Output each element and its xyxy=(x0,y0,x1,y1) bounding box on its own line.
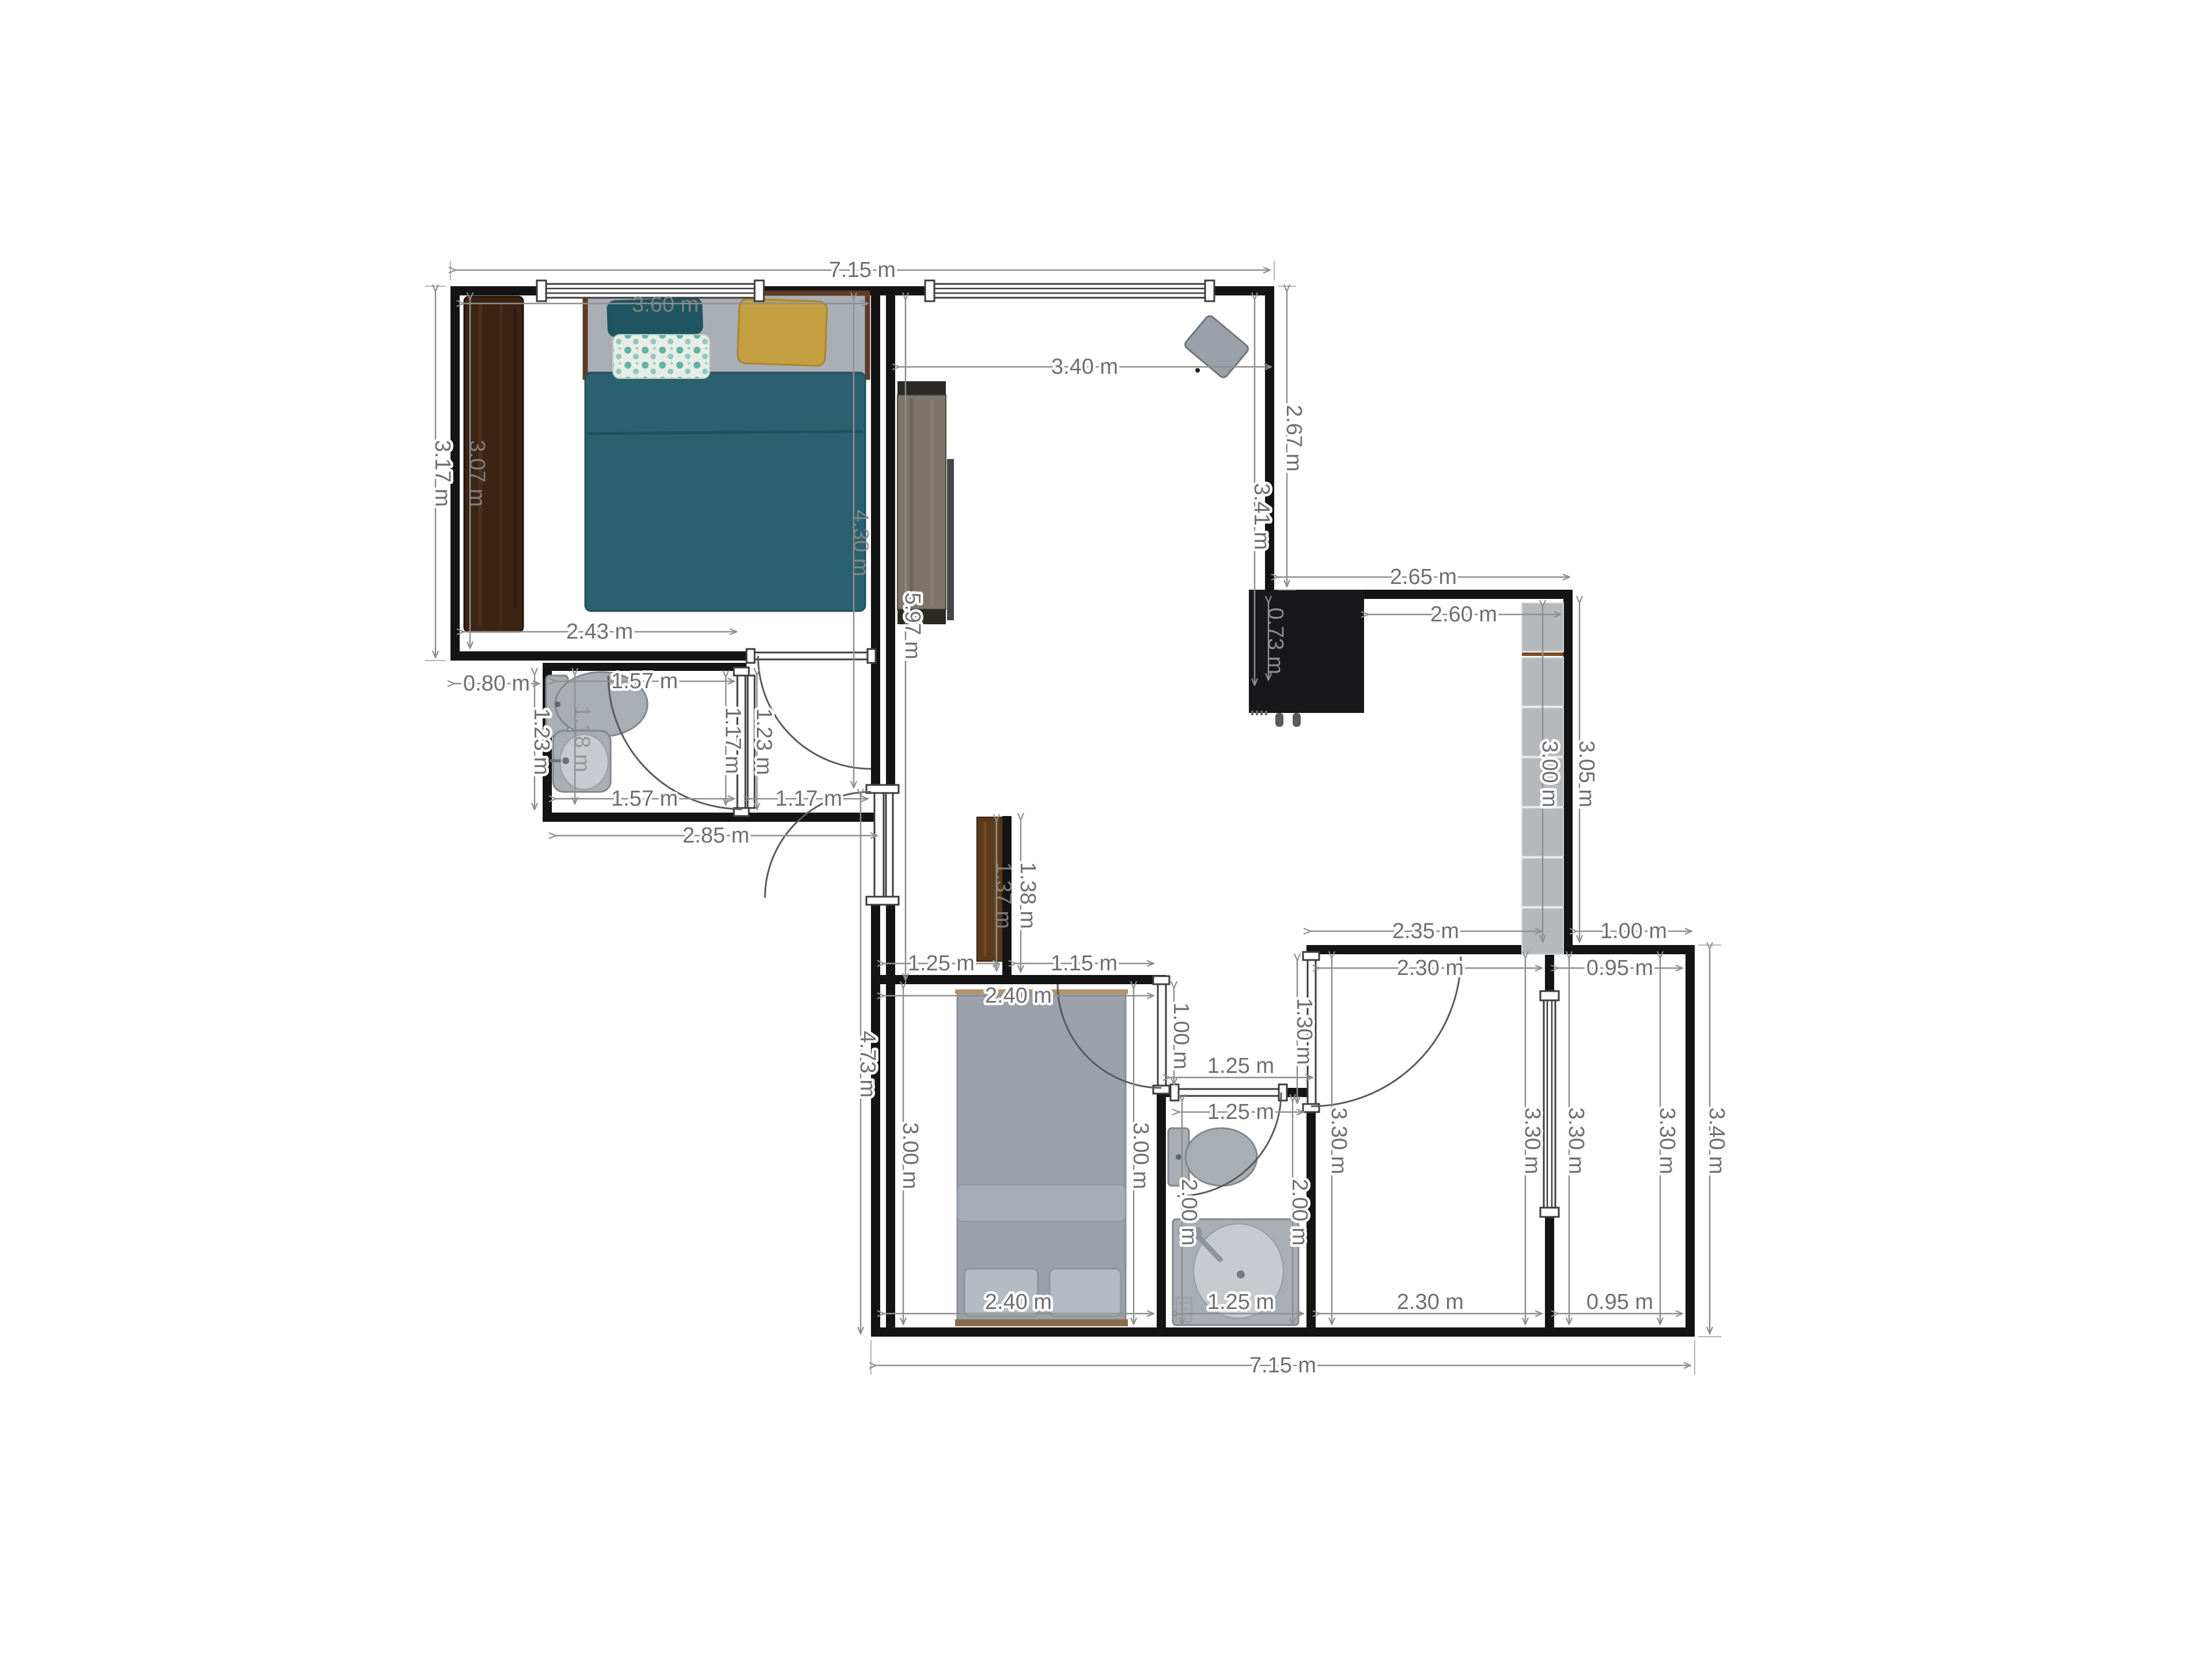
dim-label: 2.40 m xyxy=(985,1290,1052,1314)
dim-label: 2.40 m xyxy=(985,984,1052,1008)
dim-label: 4.73 m xyxy=(855,1031,880,1098)
dim-label: 2.65 m xyxy=(1390,565,1457,589)
door-leaf2 xyxy=(886,793,893,897)
dim-label: 3.30 m xyxy=(1520,1107,1544,1174)
window-glass xyxy=(1544,1000,1555,1208)
dim-label: 4.30 m xyxy=(849,510,873,576)
dim-label: 1.25 m xyxy=(908,951,975,976)
dim-label: 0.95 m xyxy=(1586,1290,1653,1314)
dim-label: 0.95 m xyxy=(1586,956,1653,980)
bed2-blanket-roll xyxy=(957,1185,1126,1221)
dim-3.40-right: 3.40 m xyxy=(1705,948,1729,1333)
window-room-divider xyxy=(1540,991,1559,1217)
dim-label: 5.97 m xyxy=(900,593,925,659)
dim-label: 3.40 m xyxy=(1705,1107,1729,1174)
window-jamb xyxy=(755,280,764,301)
wall-bedroom-bottom xyxy=(450,651,753,661)
dim-label: 1.57 m xyxy=(611,669,678,693)
wall-living-right xyxy=(1265,295,1274,599)
window-glass xyxy=(934,284,1205,298)
dim-label: 3.07 m xyxy=(465,440,489,507)
wall-lower-left-outer xyxy=(871,898,880,1337)
pillow-floral xyxy=(613,335,710,378)
window-jamb xyxy=(1205,280,1214,301)
window-living xyxy=(925,280,1214,301)
door-jamb xyxy=(866,785,899,793)
dim-label: 1.00 m xyxy=(1169,1003,1193,1069)
dim-2.85: 2.85 m xyxy=(555,824,877,848)
dim-1.38: 1.38 m xyxy=(1016,819,1040,972)
dim-label: 0.73 m xyxy=(1263,608,1287,674)
dim-label: 3.60 m xyxy=(632,293,699,317)
dim-label: 3.41 m xyxy=(1249,483,1274,550)
door-leaf xyxy=(1179,1089,1279,1096)
bed2-pillow xyxy=(1050,1269,1121,1316)
dim-3.00-bed2-right: 3.00 m xyxy=(1128,988,1153,1324)
wall-rooms-divider-b xyxy=(1545,1208,1554,1337)
dim-2.30-bottom: 2.30 m xyxy=(1319,1290,1541,1314)
toilet2-button xyxy=(1176,1154,1181,1160)
dim-3.30-div-right: 3.30 m xyxy=(1564,958,1588,1324)
dim-label: 3.30 m xyxy=(1564,1107,1588,1174)
side-table-leg xyxy=(1195,368,1200,373)
dim-2.35: 2.35 m xyxy=(1310,919,1541,943)
dim-label: 2.00 m xyxy=(1177,1179,1201,1246)
dim-label: 1.30 m xyxy=(1292,998,1316,1065)
dim-1.00-kitchen: 1.00 m xyxy=(1576,919,1691,943)
wall-rooms-top xyxy=(1306,945,1695,954)
wall-bottom xyxy=(871,1327,1695,1337)
window-jamb xyxy=(1540,1208,1559,1217)
dim-label: 3.40 m xyxy=(1051,355,1118,379)
dim-1.17-bottom: 1.17 m xyxy=(750,787,868,811)
dim-label: 3.00 m xyxy=(1537,741,1562,807)
dim-label: 3.17 m xyxy=(430,440,454,507)
bed2-headboard xyxy=(955,1319,1128,1326)
unit-body xyxy=(897,395,946,609)
dim-1.15-hall: 1.15 m xyxy=(1015,951,1153,976)
dim-1.25-bath-b: 1.25 m xyxy=(1179,1100,1303,1124)
door-jamb xyxy=(734,667,749,676)
dim-label: 3.00 m xyxy=(1128,1122,1153,1189)
wall-right xyxy=(1685,945,1695,1337)
dim-label: 1.25 m xyxy=(1207,1100,1274,1124)
dim-label: 2.67 m xyxy=(1282,405,1306,472)
door-jamb xyxy=(1153,976,1169,984)
toilet-button xyxy=(555,701,560,707)
dim-0.73: 0.73 m xyxy=(1263,602,1287,680)
wall-wc-bottom xyxy=(543,813,880,822)
dim-2.65: 2.65 m xyxy=(1278,565,1569,589)
dim-label: 2.35 m xyxy=(1392,919,1459,943)
dim-2.67: 2.67 m xyxy=(1282,291,1306,586)
dim-label: 3.05 m xyxy=(1574,741,1599,807)
dim-label: 2.30 m xyxy=(1397,1290,1464,1314)
window-jamb xyxy=(925,280,934,301)
door-leaf xyxy=(874,793,884,897)
dim-label: 2.85 m xyxy=(683,824,749,848)
dim-label: 1.15 m xyxy=(1051,951,1118,976)
bed2 xyxy=(955,989,1128,1326)
stove-knob xyxy=(1275,713,1283,727)
dim-label: 1.38 m xyxy=(1016,862,1040,929)
door-jamb xyxy=(747,649,755,663)
dim-label: 2.60 m xyxy=(1430,602,1497,627)
dim-label: 3.30 m xyxy=(1327,1107,1351,1174)
door-leaf xyxy=(1158,984,1166,1086)
dim-label: 0.80 m xyxy=(463,671,530,696)
dim-label: 1.00 m xyxy=(1600,919,1667,943)
dim-3.30-div-left: 3.30 m xyxy=(1520,958,1544,1324)
door-jamb xyxy=(1171,1084,1179,1101)
floor-plan: 7.15 m 3.60 m 3.40 m 2.65 m 2.60 m 2.43 … xyxy=(404,240,1747,1403)
window-jamb xyxy=(1540,991,1559,1000)
dim-3.00-bed2-left: 3.00 m xyxy=(898,988,922,1324)
sink-faucet xyxy=(562,757,569,764)
dim-0.95-top: 0.95 m xyxy=(1558,956,1682,980)
dim-label: 3.00 m xyxy=(898,1122,922,1189)
side-table-top xyxy=(1183,314,1249,380)
dim-0.95-bottom: 0.95 m xyxy=(1558,1290,1682,1314)
pillow-yellow xyxy=(737,298,827,366)
dim-label: 1.18 m xyxy=(570,705,594,772)
dim-1.00-door: 1.00 m xyxy=(1169,988,1193,1084)
wall-kitchen-right xyxy=(1563,599,1573,945)
dim-0.80: 0.80 m xyxy=(454,671,539,696)
dim-label: 1.17 m xyxy=(721,707,745,774)
dim-label: 2.43 m xyxy=(566,620,633,644)
wall-corridor-inner xyxy=(886,295,895,792)
toilet2-bowl xyxy=(1185,1128,1257,1186)
dim-label: 1.23 m xyxy=(752,708,776,775)
dim-3.30-room1: 3.30 m xyxy=(1327,958,1351,1324)
dim-3.05: 3.05 m xyxy=(1574,602,1599,942)
dim-label: 3.30 m xyxy=(1655,1107,1679,1174)
dim-label: 7.15 m xyxy=(829,258,896,282)
wall-bedroom2-right-b xyxy=(1157,1088,1166,1337)
dim-label: 2.00 m xyxy=(1287,1179,1312,1246)
dim-label: 1.17 m xyxy=(775,787,842,811)
bed-double xyxy=(585,293,868,611)
window-jamb xyxy=(537,280,546,301)
dim-label: 1.23 m xyxy=(529,708,554,775)
dim-label: 1.57 m xyxy=(611,787,678,811)
dim-7.15-top: 7.15 m xyxy=(455,258,1270,282)
door-jamb xyxy=(1153,1086,1169,1094)
door-jamb xyxy=(1279,1084,1287,1101)
dim-2.30-top: 2.30 m xyxy=(1319,956,1541,980)
dim-label: 2.30 m xyxy=(1397,956,1464,980)
dim-label: 1.25 m xyxy=(1207,1290,1274,1314)
dim-label: 1.37 m xyxy=(991,862,1016,929)
unit-cap-top xyxy=(897,381,946,395)
bed-duvet xyxy=(585,373,865,611)
tv-panel xyxy=(947,459,954,620)
door-leaf xyxy=(755,652,868,659)
door-jamb xyxy=(868,649,876,663)
door-jamb xyxy=(866,897,899,905)
dim-label: 1.25 m xyxy=(1207,1054,1274,1078)
stove-knob xyxy=(1293,713,1301,727)
door-jamb xyxy=(1303,952,1319,960)
shower-drain xyxy=(1237,1270,1245,1278)
dim-label: 7.15 m xyxy=(1249,1353,1316,1378)
side-table xyxy=(1183,314,1249,380)
dim-3.30-room2: 3.30 m xyxy=(1655,958,1679,1324)
door-jamb xyxy=(1303,1104,1319,1112)
floor-plan-page: 7.15 m 3.60 m 3.40 m 2.65 m 2.60 m 2.43 … xyxy=(0,0,2212,1658)
dim-7.15-bottom: 7.15 m xyxy=(876,1353,1690,1378)
wall-hall-bottom xyxy=(871,975,1166,984)
